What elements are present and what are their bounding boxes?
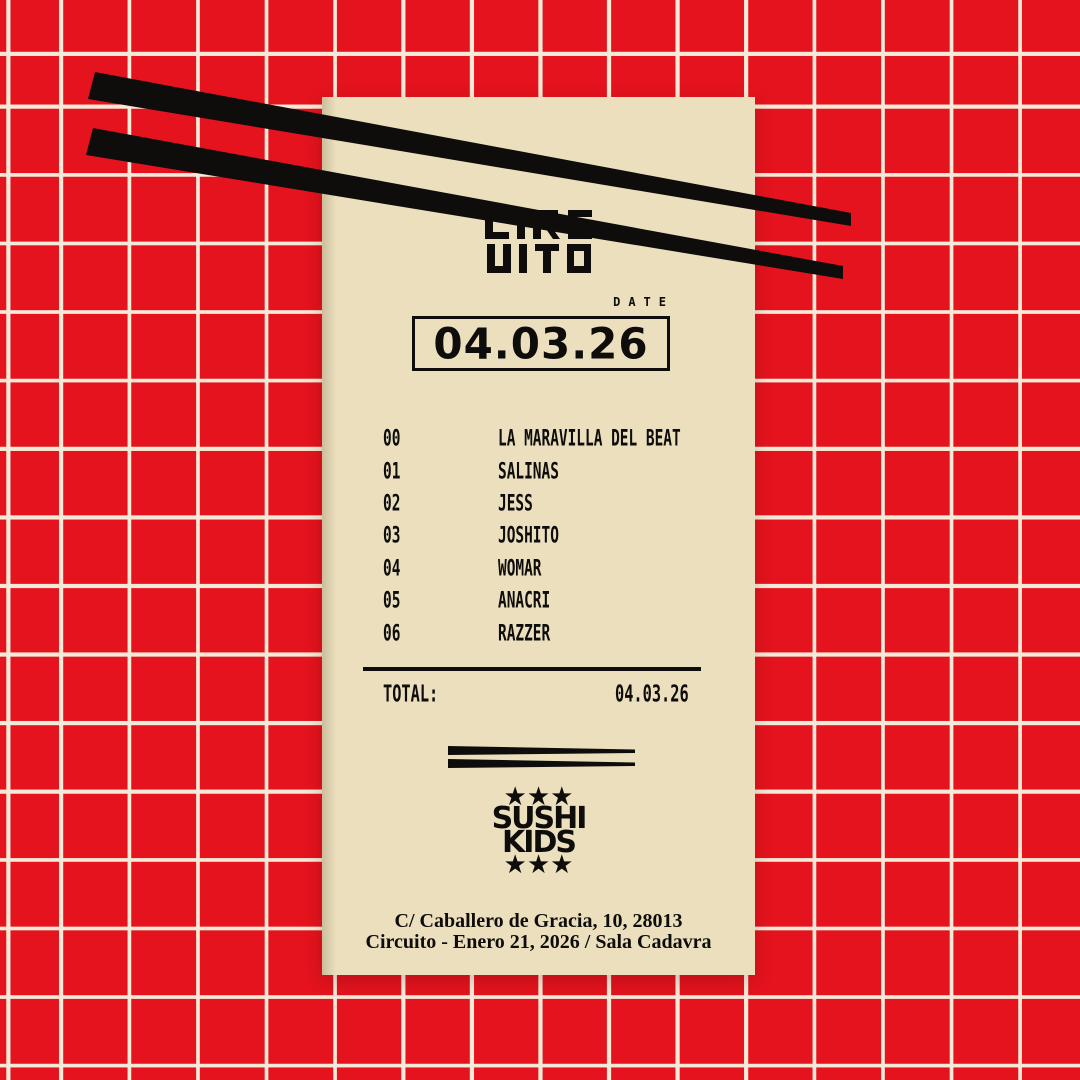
lineup-name: JOSHITO — [498, 523, 559, 549]
receipt: CIRC UITO — [322, 97, 755, 975]
kids-text: KIDS — [502, 831, 575, 855]
lineup-row: 04 WOMAR — [383, 553, 723, 585]
sushi-kids-logo: ★★★ SUSHI KIDS ★★★ — [322, 787, 755, 875]
total-label: TOTAL: — [383, 680, 438, 707]
lineup-list: 00 LA MARAVILLA DEL BEAT 01 SALINAS 02 J… — [383, 423, 723, 650]
lineup-number: 00 — [383, 426, 481, 452]
address: C/ Caballero de Gracia, 10, 28013 Circui… — [322, 911, 755, 953]
date-label: DATE — [613, 295, 674, 309]
lineup-row: 05 ANACRI — [383, 585, 723, 617]
lineup-number: 05 — [383, 588, 481, 614]
lineup-number: 03 — [383, 523, 481, 549]
letter-c-icon — [568, 210, 592, 239]
lineup-number: 04 — [383, 556, 481, 582]
date-value: 04.03.26 — [433, 319, 648, 369]
lineup-name: SALINAS — [498, 459, 559, 485]
lineup-name: ANACRI — [498, 588, 550, 614]
address-line2: Circuito - Enero 21, 2026 / Sala Cadavra — [322, 932, 755, 953]
letter-u-icon — [487, 244, 511, 273]
lineup-number: 06 — [383, 621, 481, 647]
lineup-number: 01 — [383, 459, 481, 485]
brand-row-uito — [487, 244, 591, 273]
date-box: 04.03.26 — [412, 316, 670, 371]
total-value: 04.03.26 — [615, 680, 689, 707]
lineup-row: 06 RAZZER — [383, 617, 723, 649]
letter-i-icon — [519, 244, 527, 273]
brand-logo: CIRC UITO — [322, 210, 755, 273]
lineup-number: 02 — [383, 491, 481, 517]
letter-c-icon — [485, 210, 509, 239]
lineup-name: LA MARAVILLA DEL BEAT — [498, 426, 681, 452]
poster-background: CIRC UITO — [0, 0, 1080, 1080]
address-line1: C/ Caballero de Gracia, 10, 28013 — [322, 911, 755, 932]
lineup-row: 02 JESS — [383, 488, 723, 520]
letter-r-icon — [533, 210, 560, 239]
letter-i-icon — [517, 210, 525, 239]
lineup-row: 00 LA MARAVILLA DEL BEAT — [383, 423, 723, 455]
total-divider — [363, 667, 701, 671]
letter-o-icon — [567, 244, 591, 273]
lineup-row: 03 JOSHITO — [383, 520, 723, 552]
letter-t-icon — [535, 244, 559, 273]
brand-row-circ — [485, 210, 592, 239]
lineup-name: WOMAR — [498, 556, 542, 582]
lineup-row: 01 SALINAS — [383, 455, 723, 487]
separator-chopsticks-icon — [442, 743, 642, 773]
total-row: TOTAL: 04.03.26 — [383, 682, 689, 706]
lineup-name: JESS — [498, 491, 533, 517]
lineup-name: RAZZER — [498, 621, 550, 647]
